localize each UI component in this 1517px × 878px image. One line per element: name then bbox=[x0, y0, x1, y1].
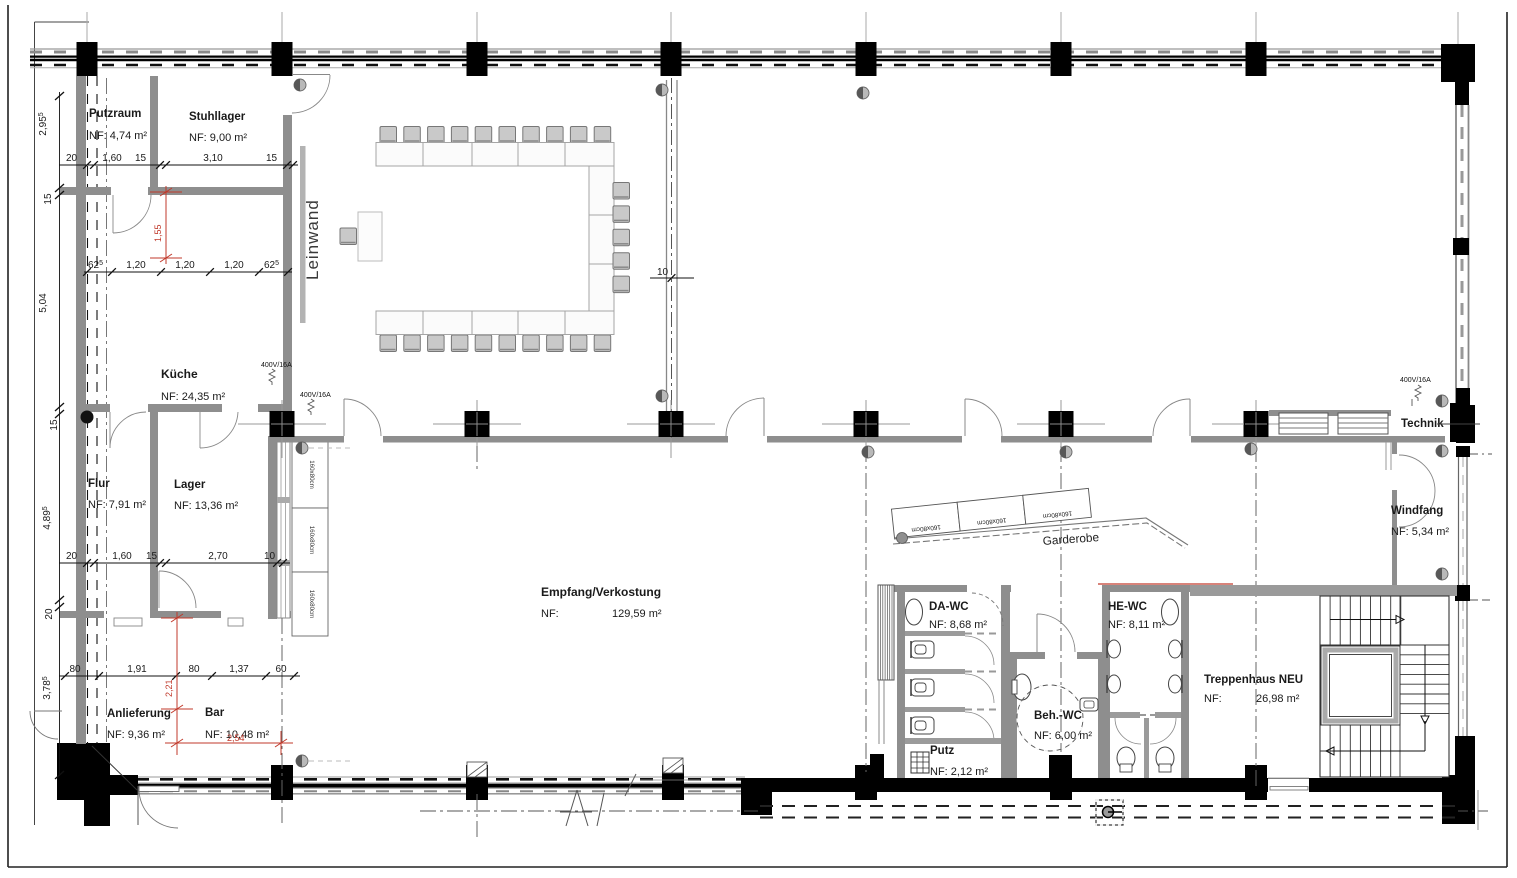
svg-text:1,20: 1,20 bbox=[224, 260, 244, 271]
svg-text:HE-WC: HE-WC bbox=[1108, 601, 1147, 613]
svg-text:60: 60 bbox=[275, 664, 287, 675]
svg-text:NF: 13,36 m²: NF: 13,36 m² bbox=[174, 500, 239, 512]
svg-text:NF: 6,00 m²: NF: 6,00 m² bbox=[1034, 730, 1092, 742]
svg-text:Empfang/Verkostung: Empfang/Verkostung bbox=[541, 585, 661, 599]
svg-text:NF:: NF: bbox=[1204, 693, 1222, 705]
svg-text:Treppenhaus NEU: Treppenhaus NEU bbox=[1204, 674, 1303, 686]
svg-text:400V/16A: 400V/16A bbox=[1400, 377, 1431, 384]
svg-text:NF: 8,11 m²: NF: 8,11 m² bbox=[1108, 619, 1166, 631]
svg-text:Anlieferung: Anlieferung bbox=[107, 708, 171, 720]
svg-text:1,60: 1,60 bbox=[112, 551, 132, 562]
svg-text:NF: 9,00 m²: NF: 9,00 m² bbox=[189, 132, 247, 144]
svg-text:1,20: 1,20 bbox=[126, 260, 146, 271]
svg-text:1,91: 1,91 bbox=[127, 664, 147, 675]
svg-text:15: 15 bbox=[49, 419, 60, 431]
svg-text:400V/16A: 400V/16A bbox=[261, 362, 292, 369]
svg-text:2,21: 2,21 bbox=[164, 679, 174, 697]
svg-text:160x80cm: 160x80cm bbox=[308, 590, 315, 619]
svg-text:NF: 5,34 m²: NF: 5,34 m² bbox=[1391, 526, 1449, 538]
svg-text:1,60: 1,60 bbox=[102, 153, 122, 164]
svg-text:Bar: Bar bbox=[205, 707, 225, 719]
svg-text:Stuhllager: Stuhllager bbox=[189, 111, 246, 123]
svg-text:NF: 8,68 m²: NF: 8,68 m² bbox=[929, 619, 987, 631]
svg-text:NF: 24,35 m²: NF: 24,35 m² bbox=[161, 391, 226, 403]
svg-text:15: 15 bbox=[43, 193, 54, 205]
svg-text:NF: 9,36 m²: NF: 9,36 m² bbox=[107, 729, 165, 741]
svg-text:15: 15 bbox=[146, 551, 158, 562]
svg-text:Beh.-WC: Beh.-WC bbox=[1034, 710, 1082, 722]
svg-text:Leinwand: Leinwand bbox=[303, 199, 322, 280]
svg-text:10: 10 bbox=[657, 267, 669, 278]
svg-text:Windfang: Windfang bbox=[1391, 505, 1443, 517]
svg-text:3,10: 3,10 bbox=[203, 153, 223, 164]
svg-text:NF: 2,12 m²: NF: 2,12 m² bbox=[930, 766, 988, 778]
svg-text:1,20: 1,20 bbox=[175, 260, 195, 271]
svg-text:NF: 4,74 m²: NF: 4,74 m² bbox=[89, 130, 147, 142]
svg-text:15: 15 bbox=[135, 153, 147, 164]
svg-text:Flur: Flur bbox=[88, 478, 110, 490]
svg-text:20: 20 bbox=[66, 551, 78, 562]
svg-text:Putzraum: Putzraum bbox=[89, 108, 141, 120]
svg-text:80: 80 bbox=[188, 664, 200, 675]
svg-text:15: 15 bbox=[266, 153, 278, 164]
svg-text:NF: 7,91 m²: NF: 7,91 m² bbox=[88, 499, 146, 511]
svg-text:20: 20 bbox=[66, 153, 78, 164]
svg-text:2,54: 2,54 bbox=[227, 733, 245, 743]
svg-text:5,04: 5,04 bbox=[38, 293, 49, 313]
svg-text:129,59 m²: 129,59 m² bbox=[612, 608, 662, 620]
svg-text:20: 20 bbox=[44, 608, 55, 620]
svg-text:160x80cm: 160x80cm bbox=[308, 526, 315, 555]
svg-text:Putz: Putz bbox=[930, 745, 955, 757]
svg-text:26,98 m²: 26,98 m² bbox=[1256, 693, 1300, 705]
svg-text:80: 80 bbox=[69, 664, 81, 675]
svg-text:Küche: Küche bbox=[161, 367, 198, 381]
svg-text:NF:: NF: bbox=[541, 608, 559, 620]
svg-text:10: 10 bbox=[264, 551, 276, 562]
svg-text:2,70: 2,70 bbox=[208, 551, 228, 562]
svg-text:Lager: Lager bbox=[174, 479, 206, 491]
svg-text:1,37: 1,37 bbox=[229, 664, 249, 675]
svg-text:160x80cm: 160x80cm bbox=[308, 460, 315, 489]
svg-text:1,55: 1,55 bbox=[153, 224, 163, 242]
svg-text:DA-WC: DA-WC bbox=[929, 601, 969, 613]
svg-text:400V/16A: 400V/16A bbox=[300, 392, 331, 399]
